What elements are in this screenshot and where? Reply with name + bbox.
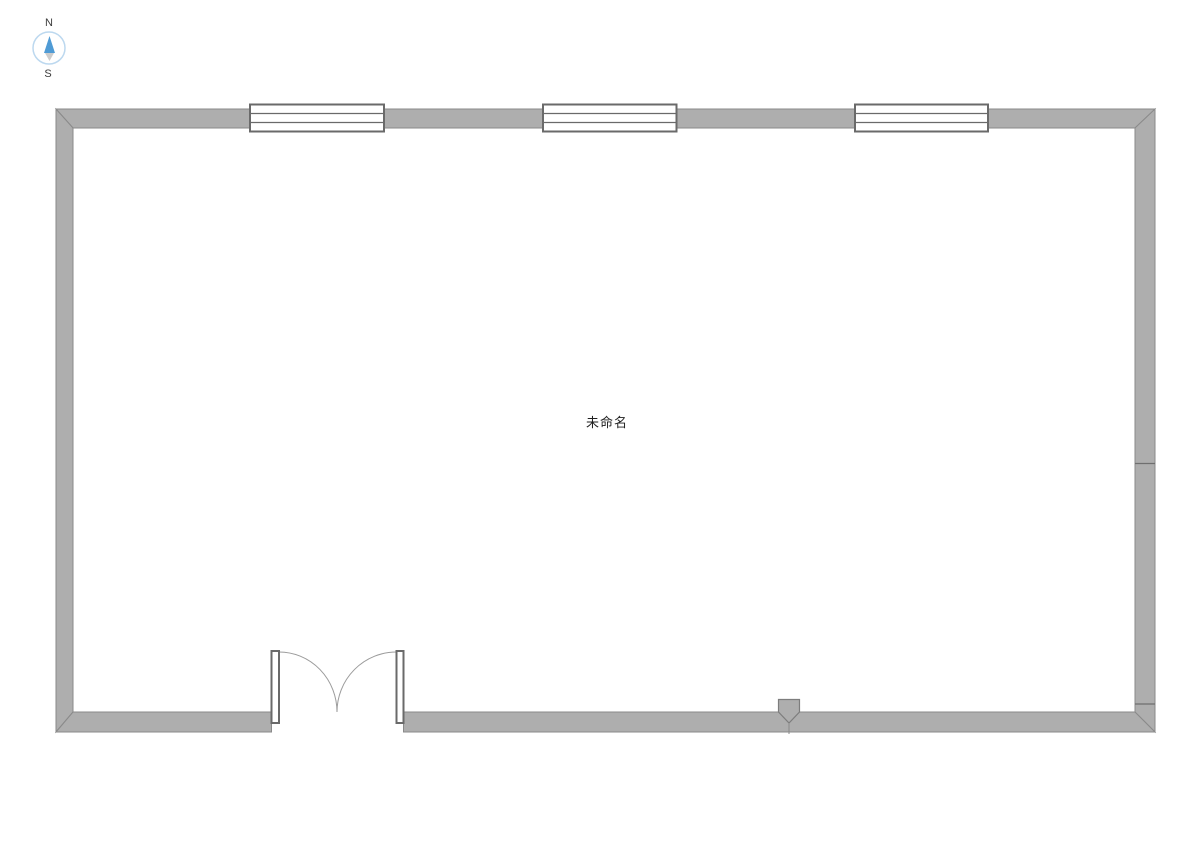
wall-left[interactable] bbox=[56, 109, 73, 732]
door-leaf-left[interactable] bbox=[272, 651, 280, 723]
compass-south-label: S bbox=[44, 68, 51, 80]
compass-north-label: N bbox=[45, 17, 53, 29]
entry-door[interactable] bbox=[272, 651, 404, 723]
window-frame[interactable] bbox=[543, 105, 677, 132]
wall-right[interactable] bbox=[1135, 109, 1155, 732]
wall-bottom-left-segment[interactable] bbox=[56, 712, 272, 732]
door-swing-arc-left bbox=[279, 652, 337, 712]
window-1[interactable] bbox=[250, 105, 384, 132]
window-frame[interactable] bbox=[855, 105, 988, 132]
window-2[interactable] bbox=[543, 105, 677, 132]
compass-icon: N S bbox=[33, 17, 65, 80]
room-name-label[interactable]: 未命名 bbox=[547, 412, 667, 431]
door-swing-arc-right bbox=[337, 652, 397, 712]
window-frame[interactable] bbox=[250, 105, 384, 132]
wall-bottom-right-segment[interactable] bbox=[404, 712, 1156, 732]
design-canvas[interactable]: N S 未命名 bbox=[0, 0, 1190, 842]
door-leaf-right[interactable] bbox=[397, 651, 404, 723]
window-3[interactable] bbox=[855, 105, 988, 132]
